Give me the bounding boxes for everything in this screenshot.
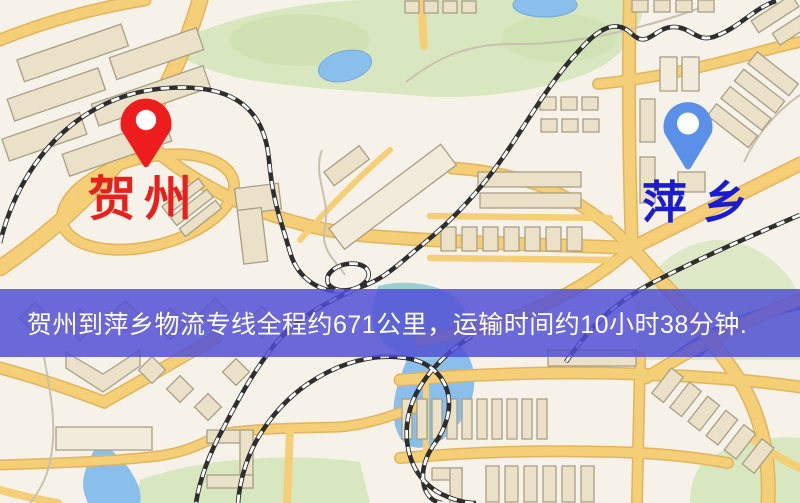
route-info-text: 贺州到萍乡物流专线全程约671公里，运输时间约10小时38分钟. — [27, 305, 747, 341]
blue-map-pin-icon[interactable] — [658, 99, 718, 179]
red-map-pin-icon[interactable] — [116, 95, 176, 175]
destination-label: 萍乡 — [642, 181, 764, 226]
red-map-pin-hole — [136, 110, 156, 130]
origin-label: 贺州 — [88, 176, 200, 224]
map-artwork — [0, 0, 800, 503]
red-map-pin-body — [121, 99, 172, 168]
map-view: 贺州 萍乡 贺州到萍乡物流专线全程约671公里，运输时间约10小时38分钟. — [0, 0, 800, 503]
blue-map-pin-body — [664, 102, 713, 169]
route-info-banner: 贺州到萍乡物流专线全程约671公里，运输时间约10小时38分钟. — [0, 289, 800, 357]
destination-marker[interactable] — [658, 99, 718, 179]
origin-marker[interactable] — [116, 95, 176, 175]
blue-map-pin-hole — [677, 113, 699, 135]
